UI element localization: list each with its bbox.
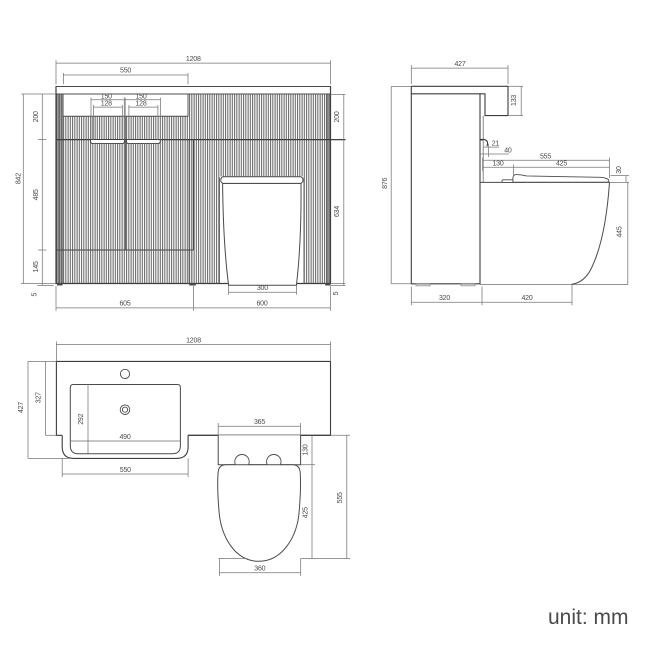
svg-text:425: 425 xyxy=(556,161,567,168)
svg-text:555: 555 xyxy=(540,153,551,160)
svg-text:490: 490 xyxy=(119,434,130,441)
svg-text:130: 130 xyxy=(492,161,503,168)
svg-text:420: 420 xyxy=(521,295,532,302)
svg-text:360: 360 xyxy=(254,565,265,572)
svg-text:150: 150 xyxy=(101,94,112,101)
svg-text:425: 425 xyxy=(303,507,310,518)
svg-text:485: 485 xyxy=(33,189,40,200)
svg-text:unit: mm: unit: mm xyxy=(548,606,629,629)
svg-text:21: 21 xyxy=(492,140,500,147)
svg-text:200: 200 xyxy=(334,111,341,122)
svg-text:133: 133 xyxy=(511,95,518,106)
svg-text:30: 30 xyxy=(616,166,623,174)
svg-text:327: 327 xyxy=(36,392,43,403)
svg-text:427: 427 xyxy=(454,61,465,68)
svg-text:427: 427 xyxy=(18,402,25,413)
svg-text:605: 605 xyxy=(119,300,130,307)
svg-text:5: 5 xyxy=(333,291,340,295)
svg-text:1208: 1208 xyxy=(186,337,201,344)
svg-text:320: 320 xyxy=(439,295,450,302)
svg-text:150: 150 xyxy=(135,94,146,101)
svg-text:292: 292 xyxy=(78,413,85,424)
svg-text:145: 145 xyxy=(33,261,40,272)
svg-text:876: 876 xyxy=(382,177,389,188)
svg-text:445: 445 xyxy=(616,226,623,237)
svg-text:1208: 1208 xyxy=(186,56,201,63)
svg-text:200: 200 xyxy=(33,111,40,122)
svg-text:128: 128 xyxy=(135,101,146,108)
svg-text:128: 128 xyxy=(101,101,112,108)
svg-text:365: 365 xyxy=(254,419,265,426)
svg-text:600: 600 xyxy=(256,300,267,307)
svg-text:634: 634 xyxy=(334,206,341,217)
svg-text:300: 300 xyxy=(257,285,268,292)
svg-text:842: 842 xyxy=(15,173,22,184)
svg-text:550: 550 xyxy=(120,68,131,75)
svg-text:130: 130 xyxy=(303,444,310,455)
svg-text:5: 5 xyxy=(32,292,39,296)
svg-text:550: 550 xyxy=(120,467,131,474)
svg-text:40: 40 xyxy=(504,147,512,154)
svg-text:555: 555 xyxy=(337,492,344,503)
